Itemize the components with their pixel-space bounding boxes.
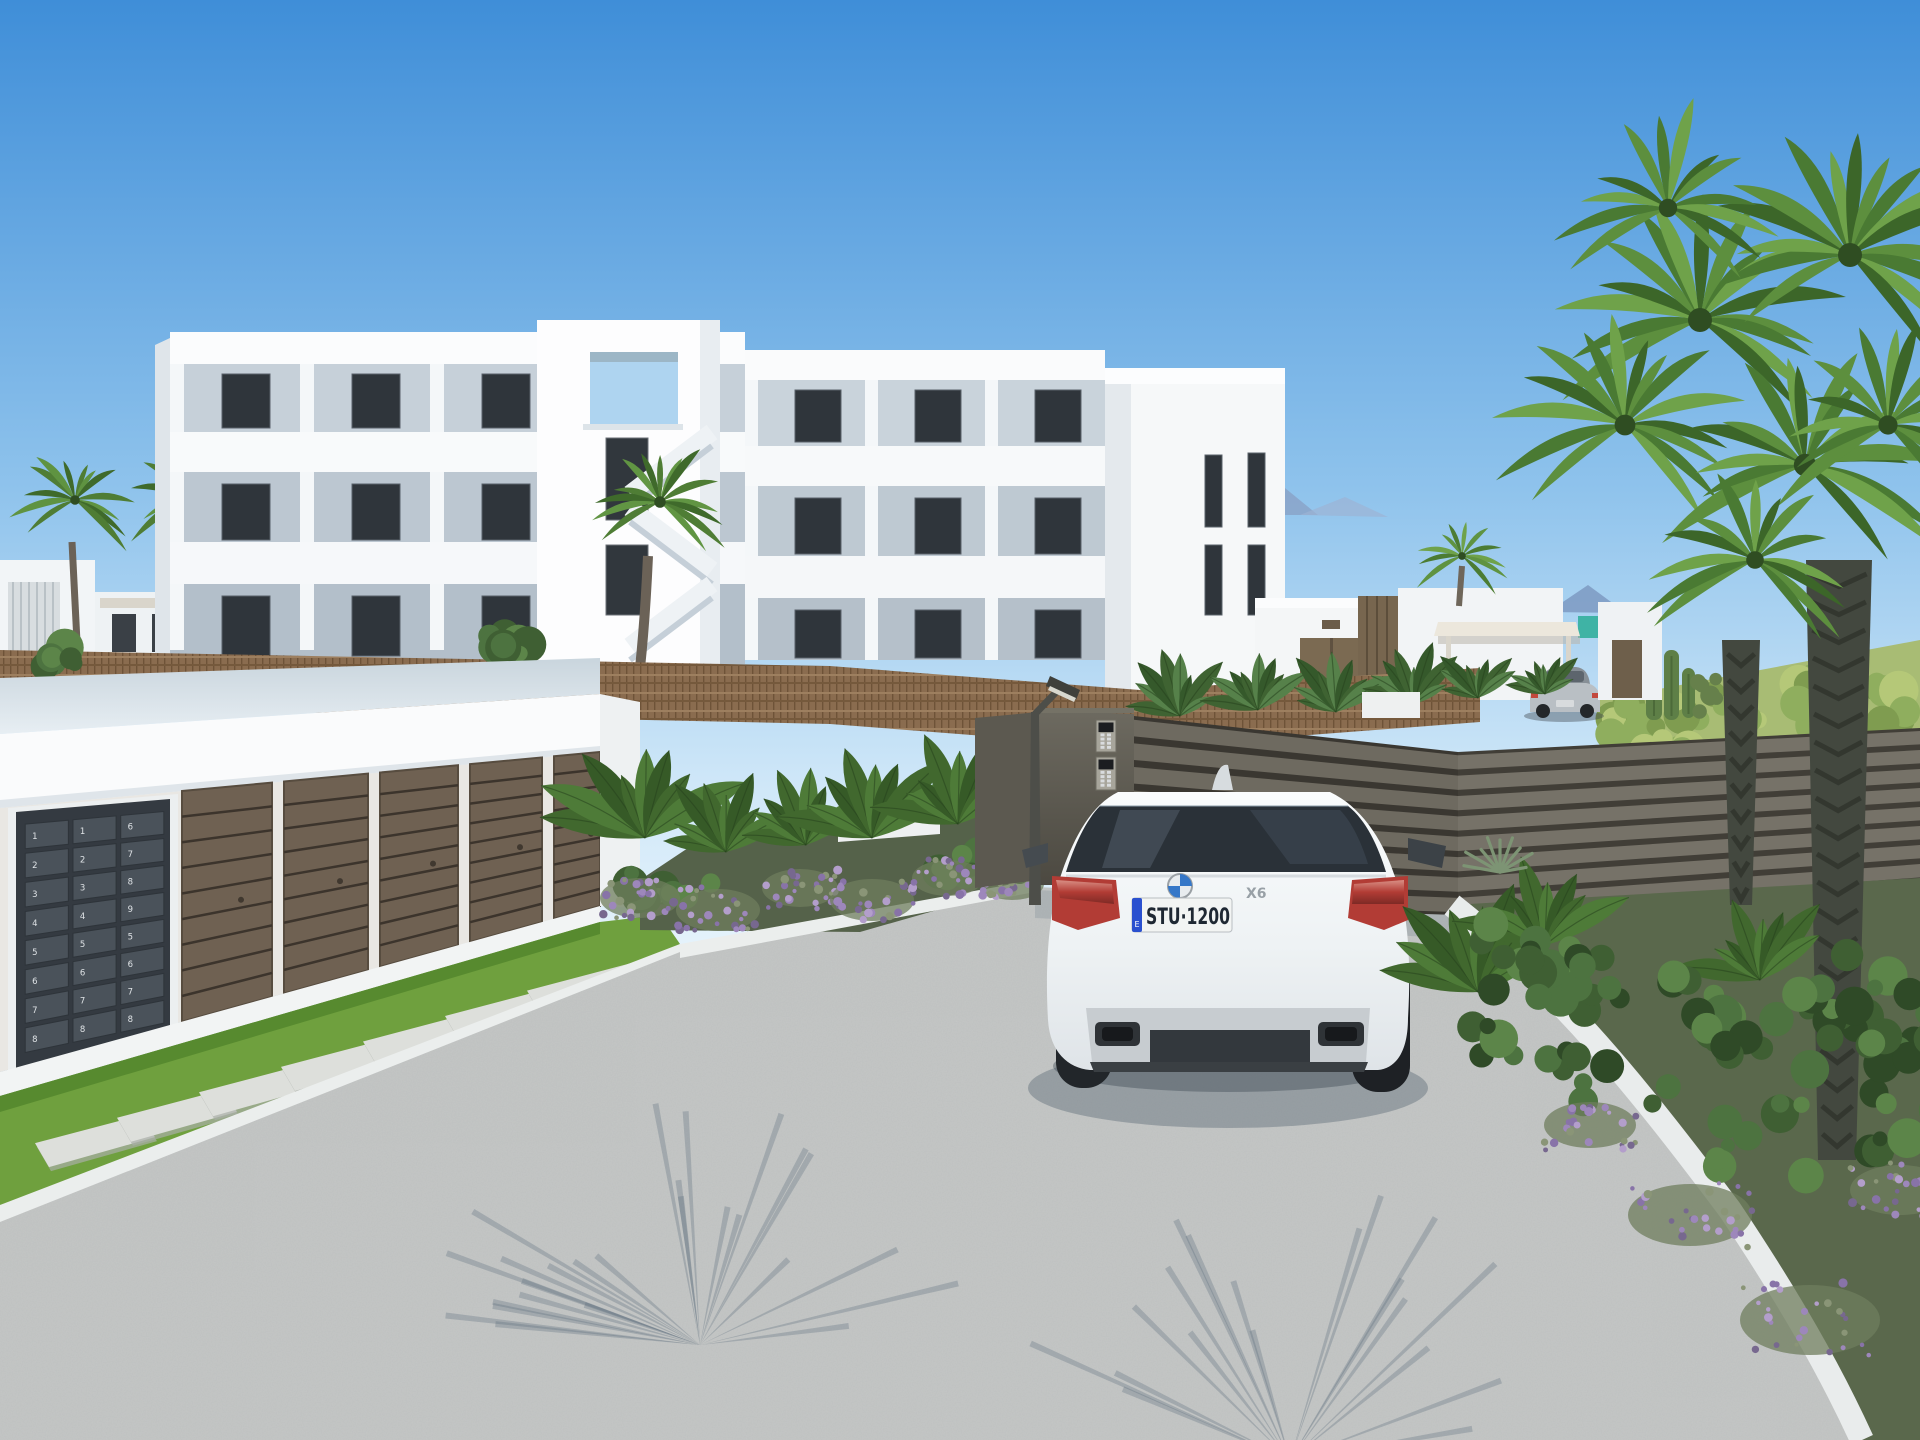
lavender-bush	[936, 882, 942, 888]
lavender-bush	[955, 890, 964, 899]
apartment-window	[915, 610, 961, 658]
intercom-button	[1101, 746, 1105, 749]
intercom-button	[1107, 733, 1111, 736]
lavender-bush	[1903, 1181, 1910, 1188]
lavender-bush	[829, 877, 834, 882]
lavender-bush	[1566, 1119, 1572, 1125]
lavender-bush	[776, 902, 783, 909]
intercom-button	[1107, 742, 1111, 745]
lavender-bush	[599, 910, 607, 918]
middle-wing-windows	[795, 390, 1081, 658]
bumper-lower-trim	[1090, 1062, 1368, 1072]
apartment-window	[222, 484, 270, 540]
white-planter-box	[1362, 692, 1420, 718]
lavender-bush	[1541, 1139, 1548, 1146]
mailbox-number: 9	[128, 905, 133, 915]
cactus-pad	[1692, 704, 1707, 719]
rooftop-palm-trunk	[1459, 566, 1462, 606]
balcony-column	[985, 598, 998, 660]
apartment-window	[795, 390, 841, 442]
balcony-column	[300, 472, 314, 542]
planter-bush	[1816, 1025, 1843, 1052]
mailbox-number: 5	[128, 933, 133, 943]
mailbox-number: 4	[80, 912, 85, 922]
lavender-bush	[812, 900, 818, 906]
slim-window	[1205, 455, 1222, 527]
lavender-bush	[622, 878, 627, 883]
balcony-column	[300, 584, 314, 650]
lamp-pole	[1029, 712, 1041, 905]
license-plate: E STU·1200	[1132, 898, 1232, 932]
mailbox-number: 2	[80, 855, 85, 865]
tail-light-glow	[1352, 880, 1404, 904]
mailbox-number: 7	[32, 1006, 37, 1016]
lavender-bush	[987, 890, 995, 898]
lavender-bush	[785, 895, 792, 902]
pergola-shadow	[1438, 636, 1580, 644]
villa-window	[112, 614, 136, 652]
lavender-bush	[1824, 1299, 1832, 1307]
background-tree	[42, 647, 63, 668]
lavender-bush	[762, 882, 770, 890]
lavender-bush	[609, 902, 617, 910]
lavender-bush	[1752, 1346, 1759, 1353]
planter-bush	[1473, 907, 1508, 942]
lavender-bush	[1841, 1345, 1846, 1350]
lavender-bush	[614, 915, 619, 920]
lavender-bush	[1619, 1119, 1627, 1127]
balcony-column	[865, 486, 878, 556]
left-wing-windows	[222, 374, 530, 656]
balcony-column	[430, 364, 444, 432]
lavender-bush	[980, 887, 987, 894]
balcony-column	[170, 472, 184, 542]
intercom-button	[1107, 775, 1111, 778]
lavender-bush	[832, 874, 837, 879]
balcony-parapet	[745, 446, 1105, 486]
lavender-bush	[1843, 1316, 1848, 1321]
palm-crown-core	[70, 495, 80, 505]
intercom-button	[1101, 738, 1105, 741]
lavender-bush	[858, 901, 862, 905]
lavender-bush	[692, 928, 697, 933]
lavender-bush	[961, 869, 970, 878]
lavender-bush	[645, 890, 652, 897]
planter-bush	[1831, 939, 1863, 971]
lavender-bush	[1632, 1113, 1639, 1120]
planter-bush	[1835, 987, 1874, 1026]
lavender-bush	[1848, 1198, 1857, 1207]
planter-bush	[1873, 1131, 1888, 1146]
building-side-face	[155, 338, 170, 665]
planter-bush	[1480, 1018, 1496, 1034]
lavender-bush	[1690, 1215, 1698, 1223]
lavender-bush	[1717, 1181, 1721, 1185]
lavender-bush	[1744, 1244, 1751, 1251]
lavender-bush	[694, 888, 699, 893]
lavender-bush	[792, 889, 796, 893]
lavender-bush	[690, 896, 696, 902]
lavender-bush	[622, 913, 627, 918]
intercom-button	[1107, 746, 1111, 749]
coupe-wheel	[1580, 704, 1594, 718]
lavender-bush	[864, 909, 873, 918]
balcony-column	[985, 380, 998, 446]
lavender-bush	[1721, 1208, 1729, 1216]
intercom-button	[1107, 771, 1111, 774]
planter-bush	[1858, 1030, 1885, 1057]
cactus-pad	[1709, 673, 1721, 685]
background-tree	[60, 647, 82, 669]
intercom-button	[1107, 784, 1111, 787]
lavender-bush	[1866, 1353, 1871, 1358]
lavender-bush	[932, 857, 938, 863]
lavender-bush	[1766, 1307, 1770, 1311]
palm-crown-core	[1746, 551, 1764, 569]
lavender-bush	[679, 902, 687, 910]
door-handle	[430, 861, 436, 867]
scene-canvas: New-build white Mediterranean apartment …	[0, 0, 1920, 1440]
balcony-column	[430, 472, 444, 542]
lavender-bush	[1874, 1179, 1879, 1184]
lavender-bush	[1574, 1122, 1581, 1129]
lavender-bush	[1726, 1216, 1734, 1224]
lavender-bush	[814, 885, 823, 894]
planter-bush	[1771, 1094, 1790, 1113]
lavender-bush	[1895, 1189, 1900, 1194]
lavender-bush	[723, 907, 731, 915]
tower-opening	[590, 352, 678, 424]
pergola-roof	[1434, 622, 1580, 636]
planter-bush	[1733, 1121, 1763, 1151]
mailbox-number: 8	[128, 1015, 133, 1025]
balcony-parapet	[745, 556, 1105, 598]
lavender-bush	[1898, 1161, 1904, 1167]
garage-door	[182, 783, 272, 1022]
exhaust-bore	[1325, 1027, 1357, 1041]
slim-window	[1205, 545, 1222, 615]
planter-bush	[1569, 953, 1596, 980]
lavender-bush	[1644, 1190, 1652, 1198]
lavender-bush	[647, 911, 656, 920]
lavender-bush	[1777, 1286, 1784, 1293]
palm-crown-core	[1878, 415, 1897, 434]
lavender-bush	[1584, 1107, 1593, 1116]
planter-bush	[1793, 1097, 1809, 1113]
lavender-bush	[1619, 1145, 1626, 1152]
lavender-bush	[823, 895, 828, 900]
lavender-bush	[1884, 1206, 1889, 1211]
apartment-window	[915, 390, 961, 442]
lavender-bush	[632, 880, 640, 888]
lavender-bush	[859, 888, 868, 897]
lavender-bush	[882, 897, 890, 905]
tower-shade	[700, 320, 720, 665]
balcony-column	[170, 364, 184, 432]
lavender-bush	[733, 926, 739, 932]
lavender-bush	[790, 873, 797, 880]
lavender-bush	[924, 870, 929, 875]
intercom-button	[1107, 779, 1111, 782]
intercom-display	[1099, 723, 1114, 733]
lavender-bush	[916, 870, 920, 874]
lavender-bush	[773, 894, 780, 901]
mailbox-number: 7	[80, 997, 85, 1007]
intercom-button	[1101, 775, 1105, 778]
mailbox-number: 3	[32, 890, 37, 900]
planter-bush	[1590, 1049, 1624, 1083]
lavender-bush	[1566, 1128, 1574, 1136]
parapet	[745, 350, 1105, 380]
balcony-column	[985, 486, 998, 556]
lavender-bush	[1796, 1334, 1803, 1341]
lavender-bush	[1761, 1286, 1767, 1292]
intercom-button	[1101, 779, 1105, 782]
lavender-bush	[1801, 1308, 1808, 1315]
lavender-bush	[1735, 1184, 1740, 1189]
main-apartment-building	[155, 320, 1285, 698]
plank-line	[1376, 596, 1378, 682]
lavender-bush	[1774, 1342, 1780, 1348]
lavender-bush	[1857, 1179, 1865, 1187]
lavender-bush	[943, 893, 950, 900]
mailbox-number: 3	[80, 884, 85, 894]
lavender-bush	[711, 894, 715, 898]
lavender-bush	[607, 880, 614, 887]
lavender-bush	[1911, 1178, 1920, 1187]
palm-crown-core	[1688, 308, 1712, 332]
apartment-window	[482, 374, 530, 428]
lavender-bush	[1602, 1104, 1609, 1111]
balcony-column	[430, 584, 444, 650]
lavender-bush	[1836, 1308, 1843, 1315]
opening-shadow	[590, 352, 678, 362]
mailbox-number: 5	[32, 948, 37, 958]
lavender-bush	[1848, 1165, 1854, 1171]
apartment-window	[795, 498, 841, 554]
lavender-bush	[645, 878, 653, 886]
mailbox-number: 6	[128, 822, 133, 832]
lavender-bush	[616, 897, 625, 906]
lavender-bush	[704, 911, 712, 919]
balcony-column	[865, 380, 878, 446]
apartment-window	[1035, 498, 1081, 554]
lavender-bush	[674, 921, 682, 929]
mailbox-number: 1	[80, 827, 85, 837]
planter-bush	[1562, 1042, 1591, 1071]
lavender-bush	[1627, 1142, 1634, 1149]
planter-bush	[1643, 1094, 1661, 1112]
mailbox-number: 4	[32, 919, 37, 929]
planter-bush	[1478, 974, 1510, 1006]
plate-number: STU·1200	[1146, 905, 1230, 930]
lavender-bush	[602, 891, 610, 899]
intercom-button	[1101, 733, 1105, 736]
lavender-bush	[1861, 1205, 1866, 1210]
lavender-bush	[1550, 1139, 1558, 1147]
lavender-bush	[1770, 1281, 1777, 1288]
lavender-bush	[688, 912, 695, 919]
apartment-window	[1035, 390, 1081, 442]
lavender-bush	[793, 880, 799, 886]
lavender-bush	[931, 876, 937, 882]
lavender-bush	[715, 921, 720, 926]
lavender-bush	[1678, 1232, 1686, 1240]
balcony-column	[170, 584, 184, 650]
lavender-bush	[965, 877, 972, 884]
architectural-render: New-build white Mediterranean apartment …	[0, 0, 1920, 1440]
lavender-bush	[742, 911, 748, 917]
lavender-bush	[1568, 1104, 1576, 1112]
lavender-bush	[880, 916, 887, 923]
mailbox-number: 6	[32, 977, 37, 987]
mailbox-number: 6	[128, 960, 133, 970]
planter-bush	[1705, 1147, 1728, 1170]
planter-bush	[1515, 946, 1544, 975]
lavender-bush	[1860, 1343, 1864, 1347]
balcony-column	[865, 598, 878, 660]
apartment-window	[795, 610, 841, 658]
plate-country-letter: E	[1134, 920, 1139, 929]
planter-bush	[1710, 1031, 1740, 1061]
lavender-bush	[636, 890, 640, 894]
planter-bush	[1782, 977, 1817, 1012]
lavender-bush	[666, 906, 671, 911]
lavender-bush	[1838, 1278, 1847, 1287]
lavender-bush	[1734, 1214, 1740, 1220]
apartment-window	[915, 498, 961, 554]
lavender-bush	[814, 906, 819, 911]
lavender-bush	[1746, 1191, 1751, 1196]
planter-bush	[1867, 980, 1883, 996]
lavender-bush	[669, 898, 678, 907]
planter-bush	[1597, 976, 1621, 1000]
palm-crown-core	[1615, 415, 1636, 436]
lavender-bush	[1756, 1301, 1761, 1306]
garage-door	[470, 757, 542, 942]
lavender-bush	[1814, 1301, 1819, 1306]
balcony-column	[745, 598, 758, 660]
lavender-bush	[833, 866, 842, 875]
bumper-diffuser	[1150, 1030, 1310, 1062]
lavender-bush	[1004, 888, 1013, 897]
bmw-roundel-icon	[1168, 874, 1192, 898]
mailbox-number: 2	[32, 861, 37, 871]
exhaust-bore	[1102, 1027, 1133, 1041]
intercom-button	[1101, 771, 1105, 774]
planter-bush	[1491, 945, 1515, 969]
lavender-bush	[911, 901, 916, 906]
slim-window	[1248, 453, 1265, 527]
background-tree	[491, 633, 516, 658]
lavender-bush	[837, 884, 845, 892]
lavender-bush	[860, 916, 867, 923]
apartment-window	[222, 374, 270, 428]
lavender-bush	[1764, 1313, 1773, 1322]
lavender-bush	[1585, 1138, 1593, 1146]
lavender-bush	[1872, 1195, 1881, 1204]
mailbox-number: 5	[80, 940, 85, 950]
lavender-bush	[1630, 1186, 1635, 1191]
apartment-window	[352, 596, 400, 656]
planter-bush	[1876, 1093, 1897, 1114]
lavender-bush	[949, 870, 957, 878]
lavender-bush	[818, 874, 825, 881]
lavender-bush	[1794, 1343, 1798, 1347]
lavender-bush	[739, 917, 743, 921]
lavender-bush	[739, 924, 746, 931]
lavender-bush	[926, 856, 932, 862]
lavender-bush	[911, 879, 918, 886]
lavender-bush	[718, 894, 723, 899]
apartment-window	[1035, 610, 1081, 658]
planter-bush	[1525, 984, 1551, 1010]
door-handle	[337, 878, 343, 884]
lavender-bush	[697, 918, 703, 924]
door-handle	[517, 844, 523, 850]
pillar-cap	[1039, 708, 1134, 713]
apartment-window	[482, 484, 530, 540]
lavender-bush	[766, 905, 771, 910]
lavender-bush	[1892, 1198, 1899, 1205]
planter-bush	[1791, 1050, 1830, 1089]
garage-door	[380, 765, 458, 967]
lavender-bush	[751, 920, 759, 928]
lavender-bush	[950, 861, 954, 865]
lavender-bush	[855, 906, 862, 913]
lavender-bush	[1800, 1326, 1808, 1334]
lavender-bush	[1621, 1138, 1628, 1145]
lavender-bush	[1887, 1173, 1894, 1180]
lavender-base	[1740, 1285, 1880, 1355]
block-shade	[1105, 368, 1131, 698]
lavender-bush	[685, 885, 693, 893]
intercom-button	[1101, 784, 1105, 787]
coupe-wheel	[1536, 704, 1550, 718]
lavender-bush	[899, 879, 905, 885]
cactus-pad	[1710, 692, 1723, 705]
lavender-bush	[829, 891, 833, 895]
ledge	[583, 424, 683, 430]
palm-crown-core	[1659, 199, 1677, 217]
mailbox-number: 8	[128, 877, 133, 887]
intercom-button	[1107, 738, 1111, 741]
lavender-bush	[1705, 1187, 1713, 1195]
lavender-bush	[781, 875, 789, 883]
lavender-bush	[653, 878, 659, 884]
lavender-bush	[1841, 1330, 1847, 1336]
garage-door	[284, 774, 368, 994]
lavender-bush	[956, 878, 960, 882]
lavender-bush	[678, 887, 684, 893]
lavender-bush	[1741, 1285, 1746, 1290]
mailbox-number: 8	[80, 1025, 85, 1035]
palm-crown-core	[1458, 552, 1466, 560]
lavender-bush	[1730, 1231, 1738, 1239]
lavender-bush	[1607, 1111, 1611, 1115]
lavender-bush	[627, 914, 634, 921]
planter-bush	[1788, 1158, 1824, 1194]
intercom-button	[1101, 742, 1105, 745]
lavender-bush	[833, 897, 842, 906]
lavender-bush	[1669, 1218, 1675, 1224]
lavender-bush	[1888, 1161, 1893, 1166]
lavender-bush	[745, 926, 750, 931]
lavender-bush	[864, 900, 872, 908]
mailbox-number: 6	[80, 968, 85, 978]
lavender-bush	[799, 882, 805, 888]
apartment-window	[352, 484, 400, 540]
